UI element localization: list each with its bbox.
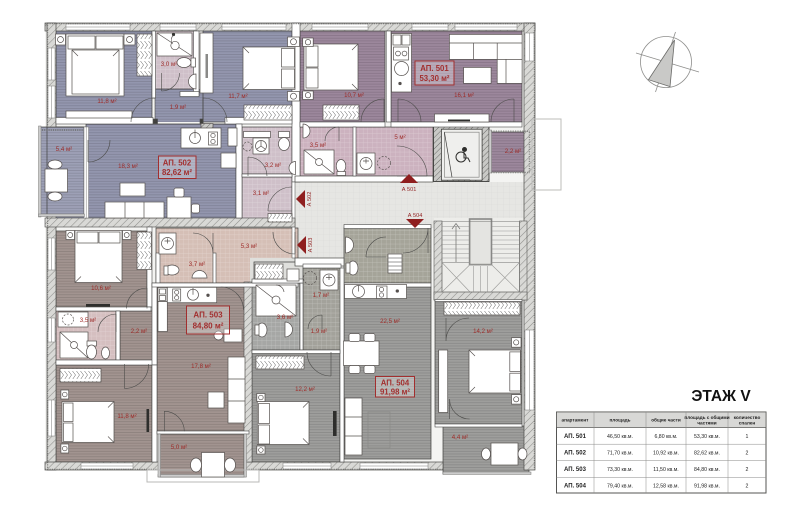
svg-text:4,4 м²: 4,4 м²: [452, 434, 468, 441]
svg-text:частями: частями: [697, 421, 716, 426]
svg-text:1,7 м²: 1,7 м²: [313, 292, 329, 299]
svg-text:АП. 503: АП. 503: [564, 467, 587, 473]
svg-text:12,58 кв.м.: 12,58 кв.м.: [653, 484, 679, 490]
svg-text:АП. 502: АП. 502: [163, 159, 192, 168]
svg-text:10,92 кв.м.: 10,92 кв.м.: [653, 451, 679, 457]
svg-text:84,80 кв.м.: 84,80 кв.м.: [694, 467, 720, 473]
svg-text:площадь: площадь: [609, 418, 630, 423]
svg-text:10,7 м²: 10,7 м²: [344, 92, 364, 99]
svg-text:82,62 кв.м.: 82,62 кв.м.: [694, 451, 720, 457]
svg-text:5,0 м²: 5,0 м²: [171, 444, 187, 451]
svg-text:22,5 м²: 22,5 м²: [380, 318, 400, 325]
svg-text:АП. 503: АП. 503: [193, 311, 223, 320]
svg-text:1: 1: [746, 434, 749, 440]
svg-text:12,2 м²: 12,2 м²: [295, 386, 315, 393]
svg-text:91,98 м²: 91,98 м²: [380, 388, 410, 397]
svg-text:10,6 м²: 10,6 м²: [91, 285, 111, 292]
svg-text:2: 2: [746, 451, 749, 457]
svg-text:АП. 502: АП. 502: [564, 451, 587, 457]
svg-text:А 504: А 504: [408, 213, 423, 219]
svg-text:А 502: А 502: [307, 192, 313, 207]
svg-text:А 503: А 503: [308, 238, 314, 253]
svg-text:53,30 м²: 53,30 м²: [419, 74, 449, 83]
svg-text:11,7 м²: 11,7 м²: [228, 93, 247, 100]
svg-text:5,4 м²: 5,4 м²: [56, 146, 72, 153]
svg-text:общие части: общие части: [651, 417, 681, 423]
svg-text:3,5 м²: 3,5 м²: [80, 317, 96, 324]
svg-text:3,2 м²: 3,2 м²: [265, 162, 281, 169]
svg-text:84,80 м²: 84,80 м²: [193, 322, 224, 331]
svg-text:5,3 м²: 5,3 м²: [241, 243, 257, 250]
svg-text:А 501: А 501: [402, 187, 417, 193]
svg-text:3,7 м²: 3,7 м²: [189, 261, 205, 268]
svg-text:апартамент: апартамент: [562, 418, 590, 423]
svg-text:5 м²: 5 м²: [394, 134, 405, 141]
svg-text:2: 2: [746, 484, 749, 490]
svg-text:АП. 504: АП. 504: [381, 379, 410, 388]
svg-text:1,9 м²: 1,9 м²: [170, 104, 186, 111]
svg-text:16,1 м²: 16,1 м²: [454, 92, 474, 99]
svg-text:2: 2: [746, 467, 749, 473]
svg-text:6,80 кв.м.: 6,80 кв.м.: [654, 434, 677, 440]
svg-text:АП. 501: АП. 501: [420, 64, 449, 73]
svg-text:91,98 кв.м.: 91,98 кв.м.: [694, 484, 720, 490]
svg-text:11,50 кв.м.: 11,50 кв.м.: [653, 467, 679, 473]
svg-text:3,0 м²: 3,0 м²: [161, 61, 177, 68]
svg-text:площадь с общими: площадь с общими: [684, 414, 729, 420]
svg-text:18,3 м²: 18,3 м²: [118, 163, 138, 170]
svg-text:1,9 м²: 1,9 м²: [311, 328, 327, 335]
svg-text:2,2 м²: 2,2 м²: [505, 148, 521, 155]
svg-text:3,5 м²: 3,5 м²: [310, 142, 326, 149]
svg-text:ЭТАЖ V: ЭТАЖ V: [691, 388, 751, 405]
svg-text:79,40 кв.м.: 79,40 кв.м.: [607, 484, 633, 490]
svg-text:3,1 м²: 3,1 м²: [253, 190, 269, 197]
svg-text:2,2 м²: 2,2 м²: [131, 328, 147, 335]
svg-text:46,50 кв.м.: 46,50 кв.м.: [607, 434, 633, 440]
svg-text:82,62 м²: 82,62 м²: [162, 168, 192, 177]
svg-text:71,70 кв.м.: 71,70 кв.м.: [607, 451, 633, 457]
svg-text:количество: количество: [734, 415, 761, 420]
svg-text:73,30 кв.м.: 73,30 кв.м.: [607, 467, 633, 473]
svg-text:53,30 кв.м.: 53,30 кв.м.: [694, 434, 720, 440]
svg-text:АП. 501: АП. 501: [564, 434, 587, 440]
svg-text:спален: спален: [739, 421, 756, 426]
svg-text:14,2 м²: 14,2 м²: [473, 328, 493, 335]
svg-text:11,8 м²: 11,8 м²: [117, 413, 136, 420]
svg-text:11,8 м²: 11,8 м²: [97, 98, 116, 105]
svg-text:АП. 504: АП. 504: [564, 484, 587, 490]
svg-text:17,8 м²: 17,8 м²: [191, 363, 211, 370]
svg-text:3,6 м²: 3,6 м²: [277, 314, 293, 321]
